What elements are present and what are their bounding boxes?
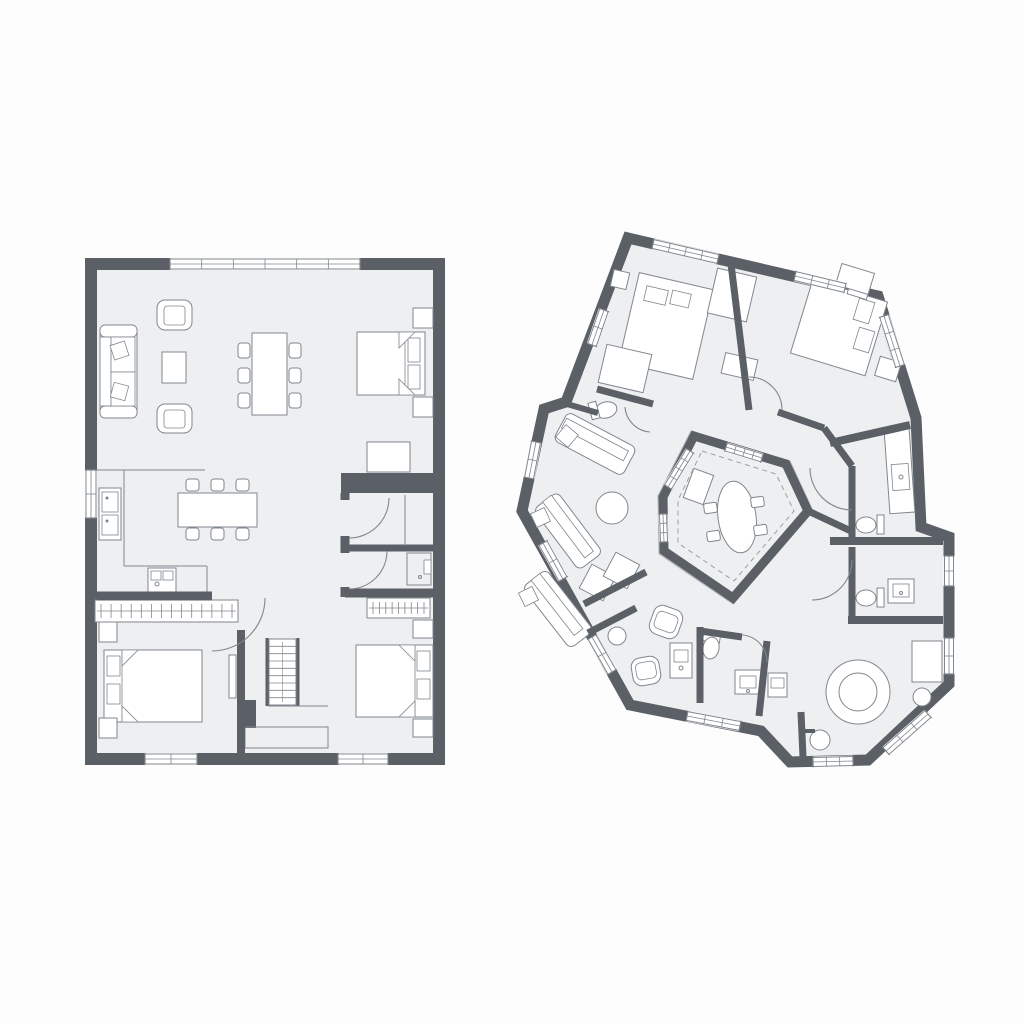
nightstand [99,622,117,642]
wall [801,712,803,757]
dining-chair [238,343,250,358]
pillow [107,684,120,704]
pillow [417,679,430,699]
nightstand [99,718,117,738]
kitchen-chair [186,528,199,540]
nightstand [413,719,433,737]
tub-chair-seat [635,660,658,680]
nightstand [413,308,433,328]
floor-plan-page [0,0,1024,1024]
chair [706,530,720,542]
stove-burner [102,492,118,512]
nightstand [610,269,629,289]
stool [913,688,931,706]
vanity-sink [893,584,909,597]
nightstand [413,397,433,417]
vanity-sink [771,678,784,688]
chair [750,496,764,508]
floor-plans-canvas [0,0,1024,1024]
toilet-tank [877,588,884,607]
dining-chair [289,368,301,383]
toilet [856,517,876,533]
cabinet-detail [424,560,431,574]
pillow [408,338,420,362]
dining-chair [238,393,250,408]
kitchen-chair [211,528,224,540]
round-tub [826,660,890,724]
stove-burner [102,515,118,535]
sofa-back [100,337,111,406]
armchair-seat [164,306,185,325]
vanity-sink [891,463,910,490]
dining-chair [289,343,301,358]
kitchen-table [178,493,257,527]
stove-knob [106,497,109,500]
toilet [856,590,876,606]
dresser [367,442,410,472]
kitchen-chair [236,528,249,540]
kitchen-chair [186,479,199,491]
kitchen-chair [236,479,249,491]
throw-pillow [110,382,128,400]
nightstand [413,620,433,638]
stove-knob [106,520,109,523]
round-table [596,492,628,524]
left-floor-plan [85,258,439,765]
wall-band [341,473,433,493]
sink-basin [163,571,173,580]
sofa-armrest [100,325,137,337]
sofa-armrest [100,406,137,418]
bench [912,641,942,682]
side-table [608,627,626,645]
dining-table [252,333,287,415]
pillow [408,365,420,389]
toilet-tank [877,515,884,534]
armchair-seat [164,410,185,428]
hall-shelf [229,655,236,698]
washbasin [674,650,688,662]
chair [703,502,717,514]
vanity-sink [740,676,756,688]
pillow [107,656,120,676]
kitchen-chair [211,479,224,491]
chair [753,524,767,536]
sink-basin [151,571,161,580]
pillow [417,651,430,671]
dining-chair [289,393,301,408]
dining-chair [238,368,250,383]
coffee-table [162,352,186,383]
